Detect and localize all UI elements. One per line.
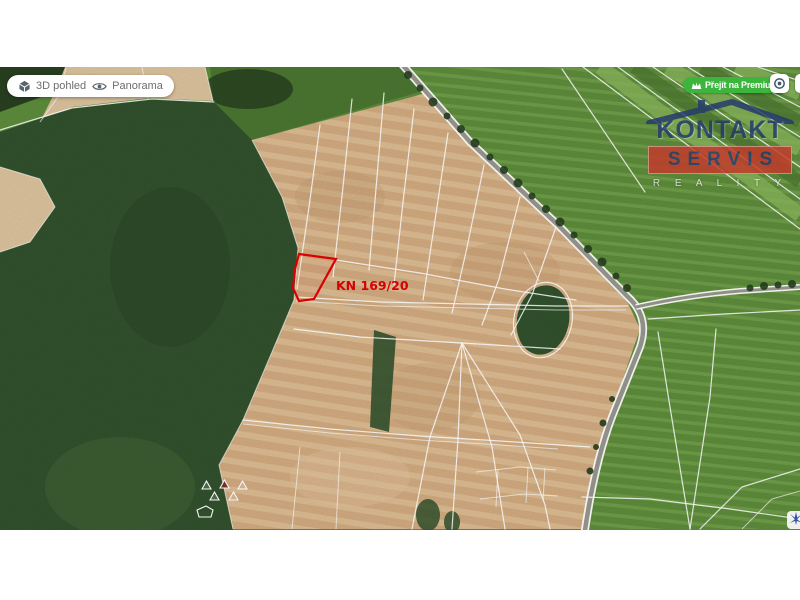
edge-button-partial[interactable] <box>795 74 800 93</box>
premium-label: Přejít na Premium <box>705 80 778 90</box>
premium-crown-icon <box>691 81 702 90</box>
map-canvas[interactable]: KN 169/20 <box>0 67 800 530</box>
target-icon <box>773 77 786 90</box>
screen: KN 169/20 3D pohled Pan <box>0 0 800 600</box>
view-mode-pill: 3D pohled Panorama <box>7 75 174 97</box>
view-3d-label: 3D pohled <box>36 80 86 92</box>
panorama-button[interactable]: Panorama <box>92 80 163 92</box>
cube-3d-icon <box>18 80 31 93</box>
panorama-label: Panorama <box>112 80 163 92</box>
map-viewport[interactable]: KN 169/20 <box>0 67 800 530</box>
texture-overlay <box>0 67 800 530</box>
locate-button[interactable] <box>770 74 789 93</box>
panorama-eye-icon <box>92 81 107 92</box>
view-3d-button[interactable]: 3D pohled <box>18 80 86 93</box>
